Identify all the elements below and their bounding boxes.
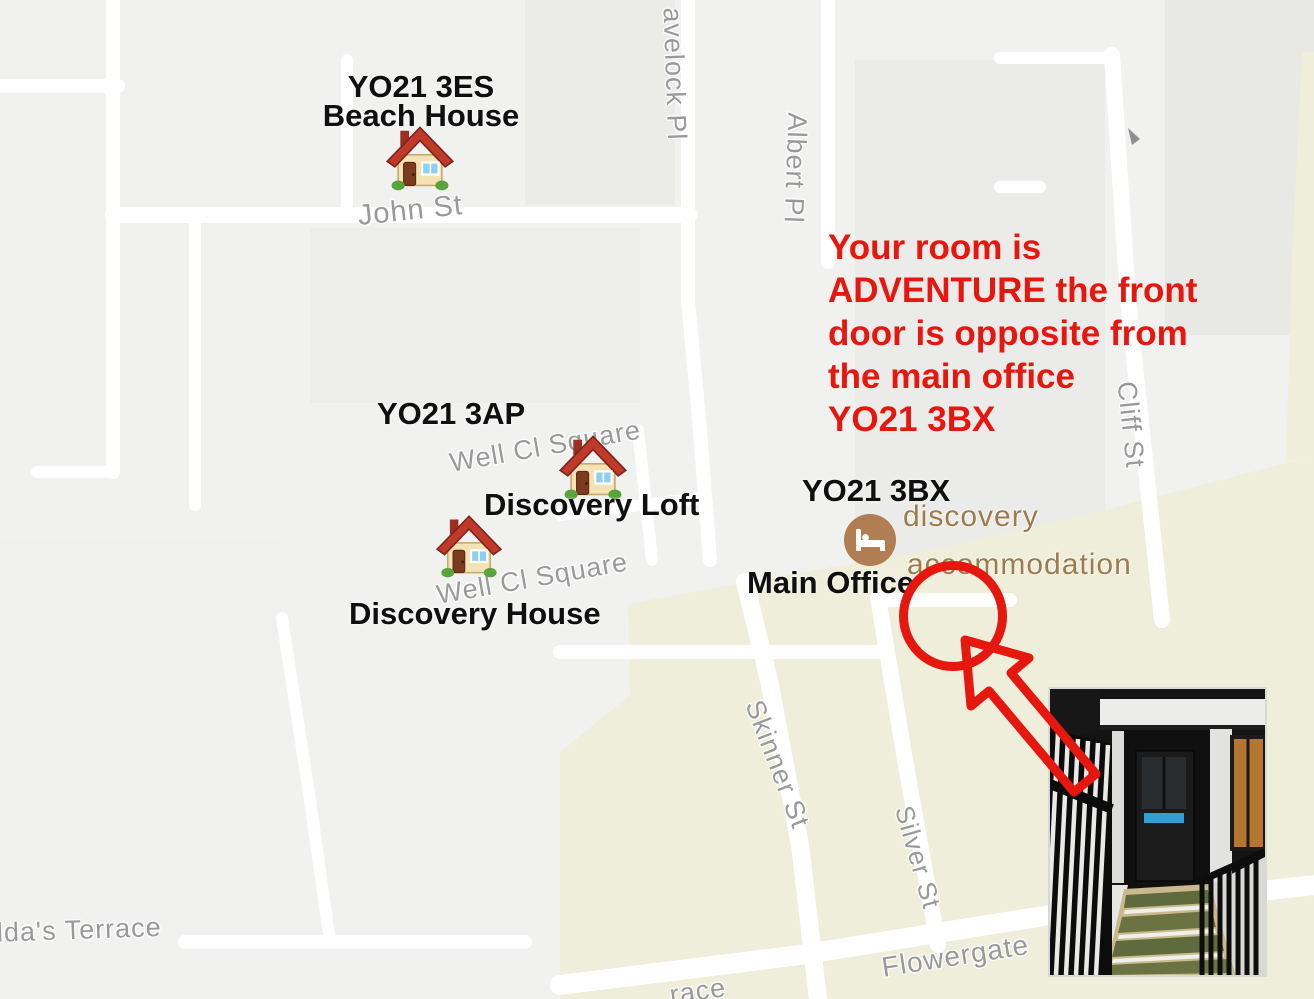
note-line-2: ADVENTURE the front [828, 269, 1197, 312]
marker-label-yo21-3bx: YO21 3BX [802, 473, 950, 509]
red-arrow-annotation [930, 600, 1130, 820]
street-label-hildas-terrace: ilda's Terrace [0, 912, 162, 949]
marker-label-main-office: Main Office [747, 565, 914, 601]
note-line-3: door is opposite from [828, 312, 1197, 355]
note-line-4: the main office [828, 355, 1197, 398]
beach-house-name: Beach House [321, 101, 521, 130]
room-instruction-note: Your room is ADVENTURE the front door is… [828, 226, 1197, 441]
note-line-1: Your room is [828, 226, 1197, 269]
bed-icon [843, 513, 897, 567]
street-label-albert-pl: Albert Pl [778, 112, 813, 224]
marker-label-yo21-3ap: YO21 3AP [377, 396, 525, 432]
beach-house-postcode: YO21 3ES [321, 72, 521, 101]
street-label-havelock-pl: avelock Pl [657, 7, 693, 141]
marker-label-discovery-loft: Discovery Loft [484, 487, 699, 523]
note-line-5: YO21 3BX [828, 398, 1197, 441]
annotated-map: John St avelock Pl Albert Pl Cliff St We… [0, 0, 1314, 999]
marker-label-beach-house: YO21 3ES Beach House [321, 72, 521, 130]
marker-label-discovery-house: Discovery House [349, 596, 601, 632]
